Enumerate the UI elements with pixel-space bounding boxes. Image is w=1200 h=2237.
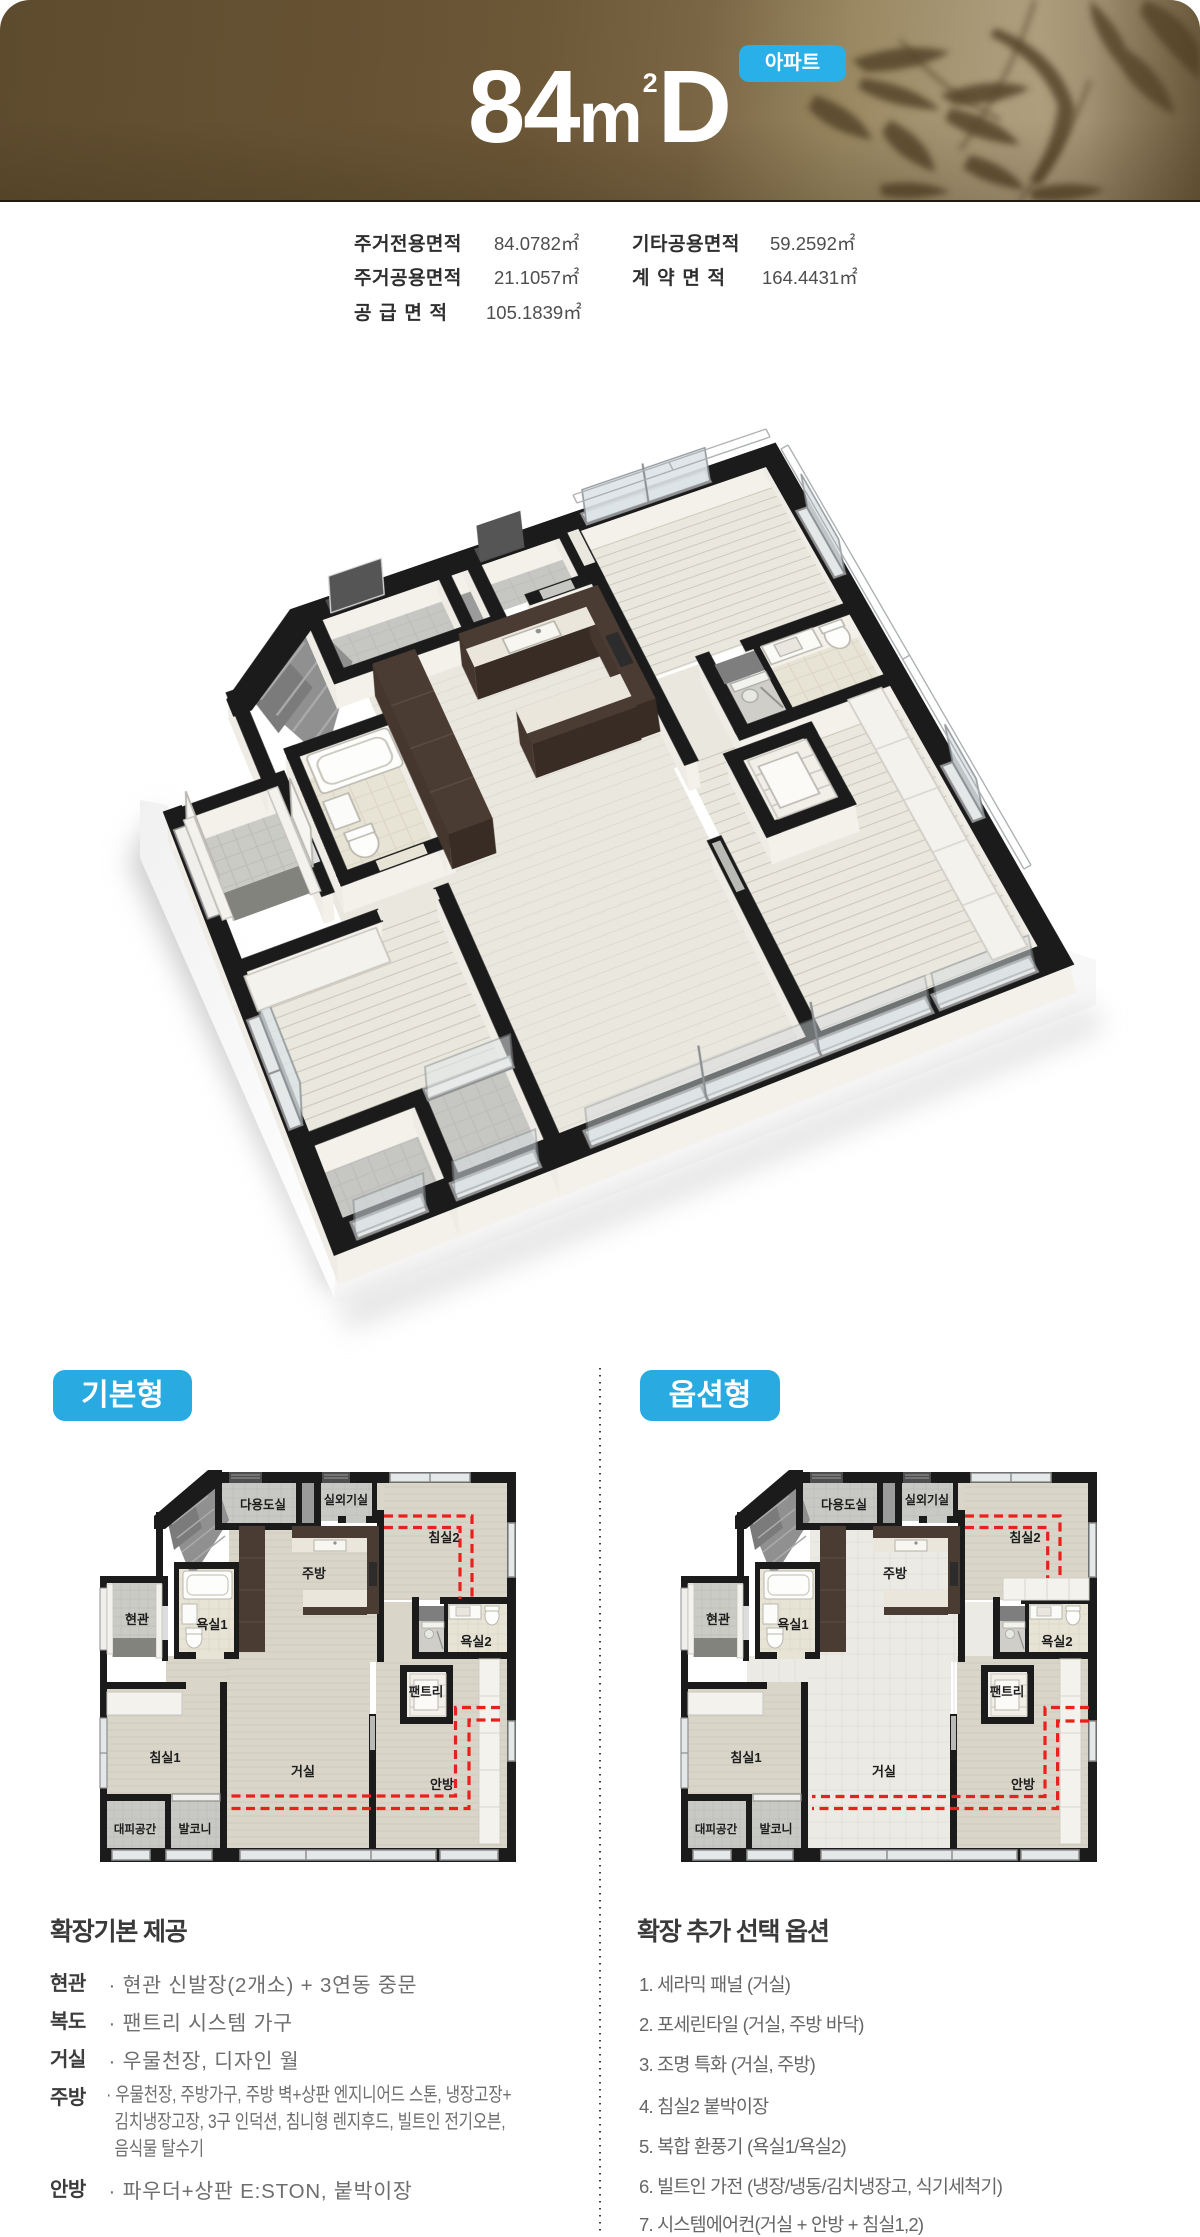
svg-text:침실2: 침실2 — [1009, 1530, 1040, 1545]
svg-text:침실2: 침실2 — [428, 1530, 459, 1545]
svg-text:주방: 주방 — [883, 1566, 907, 1581]
svg-text:거실: 거실 — [872, 1764, 896, 1779]
svg-text:침실1: 침실1 — [730, 1750, 761, 1765]
svg-text:실외기실: 실외기실 — [324, 1492, 368, 1507]
svg-text:다용도실: 다용도실 — [240, 1497, 286, 1512]
svg-text:대피공간: 대피공간 — [114, 1822, 157, 1836]
svg-text:대피공간: 대피공간 — [695, 1822, 738, 1836]
svg-text:욕실2: 욕실2 — [1041, 1634, 1072, 1649]
svg-text:침실1: 침실1 — [149, 1750, 180, 1765]
svg-text:발코니: 발코니 — [178, 1821, 211, 1836]
svg-text:현관: 현관 — [706, 1612, 730, 1627]
svg-text:거실: 거실 — [291, 1764, 315, 1779]
svg-text:욕실1: 욕실1 — [777, 1617, 808, 1632]
svg-text:욕실1: 욕실1 — [196, 1617, 227, 1632]
svg-text:안방: 안방 — [1011, 1777, 1035, 1792]
svg-text:실외기실: 실외기실 — [905, 1492, 949, 1507]
svg-text:주방: 주방 — [302, 1566, 326, 1581]
svg-text:발코니: 발코니 — [759, 1821, 792, 1836]
svg-text:안방: 안방 — [430, 1777, 454, 1792]
svg-text:욕실2: 욕실2 — [460, 1634, 491, 1649]
svg-text:팬트리: 팬트리 — [990, 1684, 1025, 1699]
svg-text:현관: 현관 — [125, 1612, 149, 1627]
svg-text:팬트리: 팬트리 — [409, 1684, 444, 1699]
svg-text:다용도실: 다용도실 — [821, 1497, 867, 1512]
